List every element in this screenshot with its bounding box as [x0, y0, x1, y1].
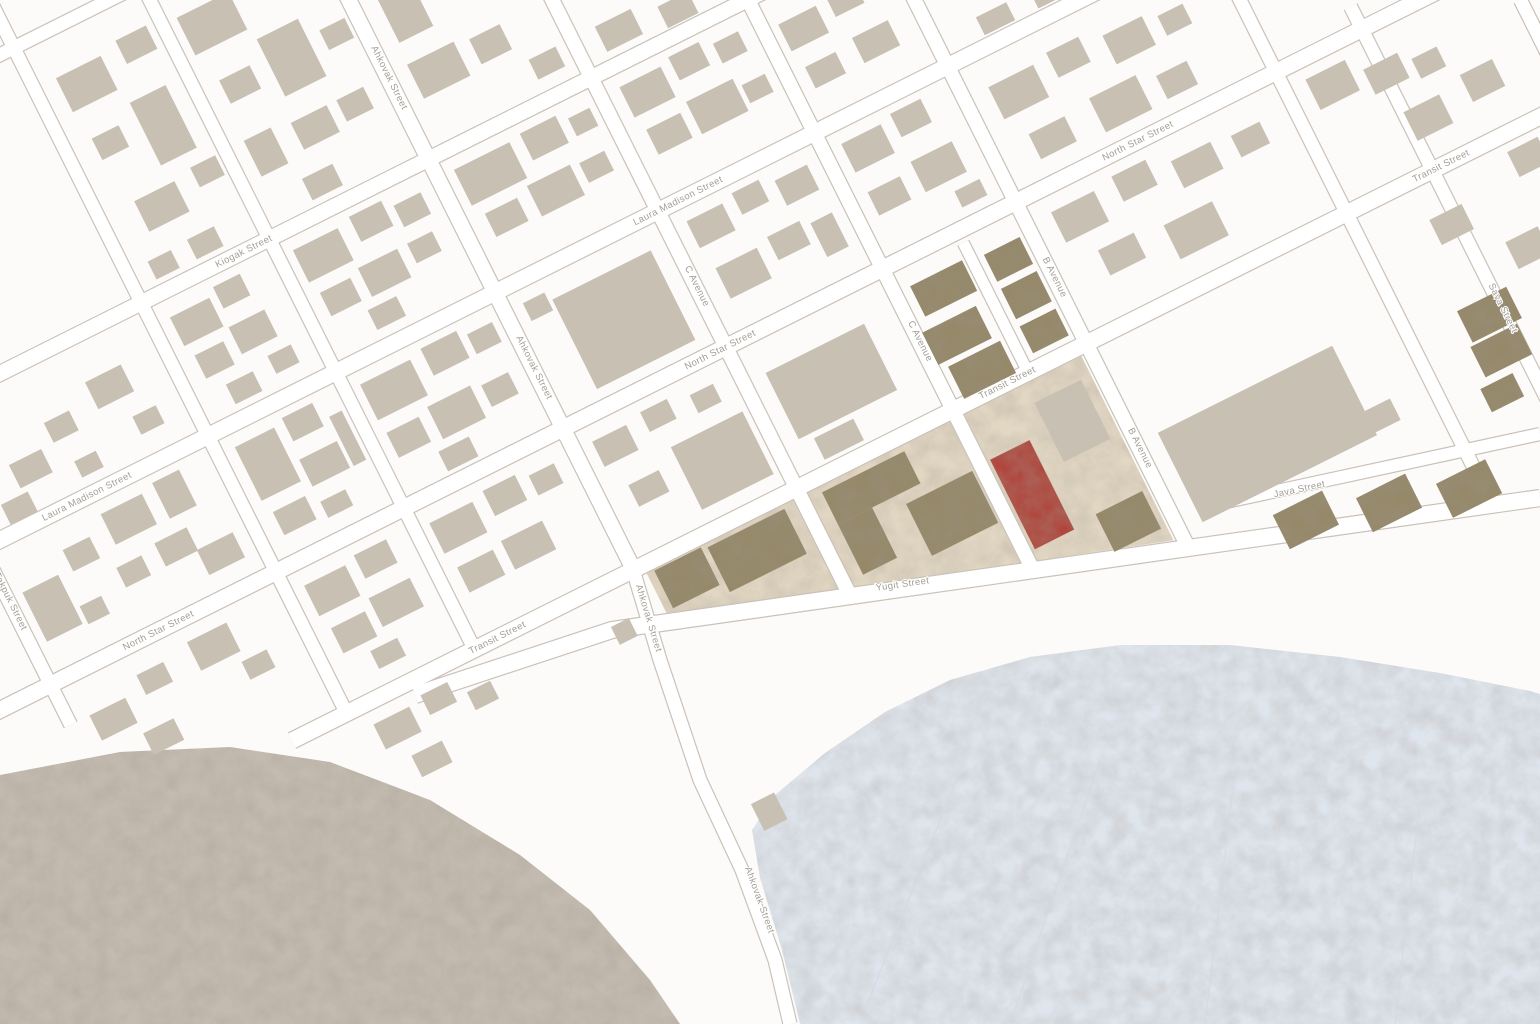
- site-plan-map: Kiogak StreetLaura Madison StreetLaura M…: [0, 0, 1540, 1024]
- map-canvas: Kiogak StreetLaura Madison StreetLaura M…: [0, 0, 1540, 1024]
